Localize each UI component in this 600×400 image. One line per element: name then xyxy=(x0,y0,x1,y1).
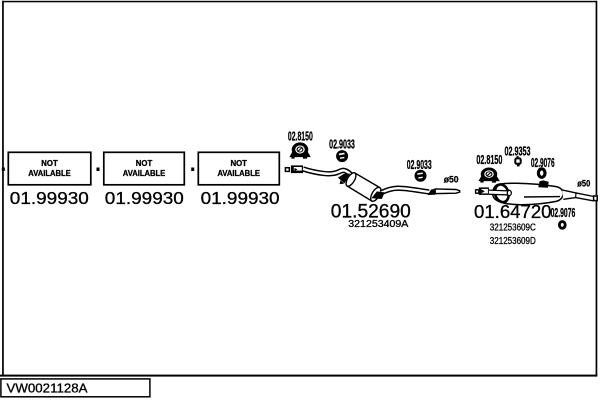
svg-text:321253409A: 321253409A xyxy=(348,219,408,230)
svg-text:ø50: ø50 xyxy=(444,175,459,186)
svg-text:321253609D: 321253609D xyxy=(490,236,536,247)
svg-text:NOT: NOT xyxy=(136,158,153,168)
svg-text:02.9076: 02.9076 xyxy=(551,205,576,220)
svg-text:01.99930: 01.99930 xyxy=(201,188,280,208)
svg-text:VW0021128A: VW0021128A xyxy=(7,381,89,395)
svg-text:01.99930: 01.99930 xyxy=(105,188,184,208)
svg-text:01.99930: 01.99930 xyxy=(10,188,89,208)
svg-text:AVAILABLE: AVAILABLE xyxy=(28,168,71,178)
svg-text:AVAILABLE: AVAILABLE xyxy=(217,168,260,178)
svg-text:02.9033: 02.9033 xyxy=(329,137,355,152)
svg-text:02.8150: 02.8150 xyxy=(288,129,313,144)
svg-text:ø50: ø50 xyxy=(577,179,590,190)
svg-text:NOT: NOT xyxy=(230,158,247,168)
svg-text:02.8150: 02.8150 xyxy=(476,152,502,167)
svg-text:AVAILABLE: AVAILABLE xyxy=(123,168,166,178)
svg-text:NOT: NOT xyxy=(41,158,58,168)
svg-text:02.9033: 02.9033 xyxy=(407,157,432,172)
svg-text:321253609C: 321253609C xyxy=(490,222,536,233)
svg-text:01.64720: 01.64720 xyxy=(474,201,552,222)
